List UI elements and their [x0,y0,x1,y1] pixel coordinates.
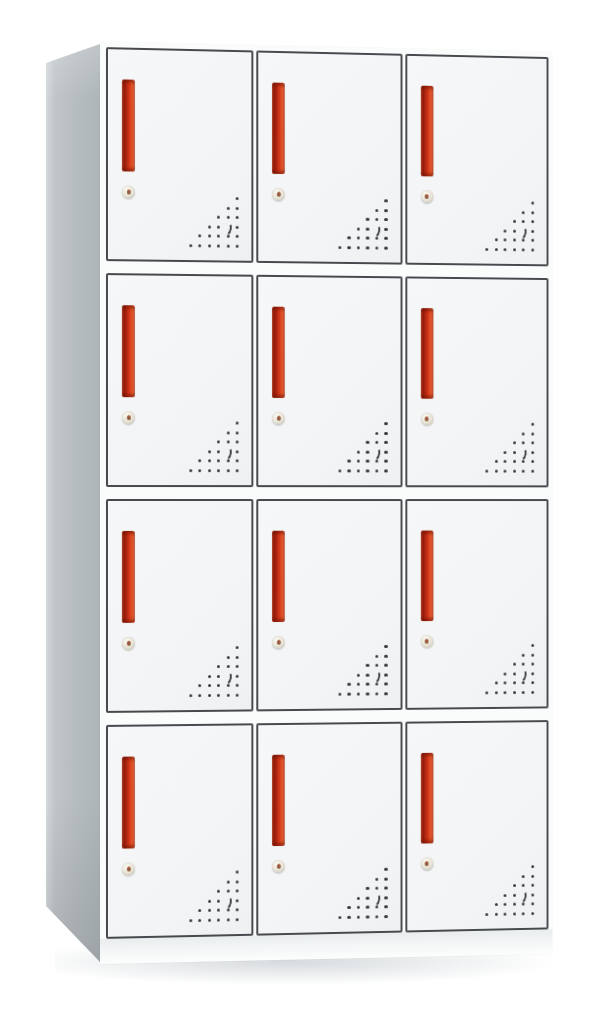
vent-dot [385,469,388,472]
locker-door [257,722,403,936]
vent-dot [375,877,378,880]
vent-dot [531,912,534,915]
keyhole-icon [277,864,281,869]
vent-dot [504,460,507,463]
vent-dot [531,884,534,887]
vent-dot [522,681,525,684]
cabinet-side-panel [46,44,100,962]
vent-dot [348,236,351,239]
vent-dot [486,691,489,694]
vent-dot [366,664,369,667]
door-handle-icon [272,307,285,398]
vent-holes-icon [189,870,239,922]
keyhole-icon [126,641,130,646]
door-handle-icon [122,757,135,849]
vent-holes-icon [338,645,388,696]
vent-dot [513,681,516,684]
keyhole-icon [425,639,429,644]
locker-door [405,720,548,932]
vent-dot [226,440,229,443]
vent-dot [513,469,516,472]
vent-dot [217,909,220,912]
vent-dot [236,197,239,200]
vent-dot [226,665,229,668]
door-handle-icon [122,531,135,623]
vent-dot [522,912,525,915]
vent-dot [486,913,489,916]
locker-door [257,499,403,711]
vent-dot [385,645,388,648]
vent-dot [236,422,239,425]
vent-holes-icon [338,868,388,919]
vent-dot [504,681,507,684]
vent-dot [504,691,507,694]
locker-door [106,273,254,487]
vent-dot [236,899,239,902]
vent-dot [504,451,507,454]
vent-dot [513,238,516,241]
vent-dot [198,918,201,921]
vent-holes-icon [485,201,534,252]
vent-dot [522,211,525,214]
vent-dot [226,206,229,209]
vent-dot [531,202,534,205]
vent-dot [375,469,378,472]
vent-dot [366,896,369,899]
vent-dot [366,237,369,240]
vent-dot [236,665,239,668]
locker-door [405,276,548,487]
vent-dot [236,646,239,649]
vent-dot [217,684,220,687]
vent-dot [522,239,525,242]
vent-holes-icon [189,646,239,697]
vent-dot [385,209,388,212]
vent-dot [217,918,220,921]
vent-dot [495,248,498,251]
vent-dot [522,663,525,666]
vent-dot [348,692,351,695]
vent-dot [217,235,220,238]
vent-dot [522,884,525,887]
vent-dot [198,459,201,462]
vent-dot [198,469,201,472]
vent-dot [513,460,516,463]
vent-dot [217,216,220,219]
vent-dot [385,877,388,880]
vent-dot [348,246,351,249]
vent-dot [522,220,525,223]
vent-dot [486,247,489,250]
vent-dot [189,694,192,697]
vent-dot [208,469,211,472]
vent-dot [226,459,229,462]
vent-dot [385,441,388,444]
vent-dot [504,894,507,897]
vent-dot [217,899,220,902]
vent-dot [217,450,220,453]
vent-dot [531,441,534,444]
vent-dot [495,469,498,472]
cam-lock-icon [122,185,135,198]
vent-dot [531,423,534,426]
vent-dot [236,693,239,696]
vent-dot [236,469,239,472]
vent-dot [375,654,378,657]
vent-dot [236,206,239,209]
keyhole-icon [126,866,130,871]
vent-dot [531,865,534,868]
vent-dot [385,218,388,221]
vent-dot [385,682,388,685]
vent-dot [348,460,351,463]
vent-dot [366,915,369,918]
vent-dot [236,684,239,687]
vent-dot [198,684,201,687]
vent-dot [531,672,534,675]
vent-dot [348,906,351,909]
vent-dot [385,422,388,425]
vent-dot [385,450,388,453]
vent-dot [226,684,229,687]
vent-dot [531,432,534,435]
vent-dot [208,918,211,921]
vent-dot [375,915,378,918]
vent-dot [486,469,489,472]
vent-holes-icon [189,196,239,247]
vent-dot [531,681,534,684]
vent-dot [513,229,516,232]
vent-dot [385,868,388,871]
vent-dot [366,692,369,695]
vent-dot [357,450,360,453]
vent-dot [513,903,516,906]
vent-dot [513,441,516,444]
vent-dot [226,880,229,883]
vent-dot [531,469,534,472]
vent-dot [375,237,378,240]
vent-dot [217,665,220,668]
vent-dot [236,440,239,443]
vent-dot [236,674,239,677]
vent-holes-icon [189,421,239,472]
cam-lock-icon [272,188,285,201]
vent-dot [366,469,369,472]
vent-dot [217,674,220,677]
locker-door [257,275,403,487]
locker-door [405,54,548,266]
keyhole-icon [126,189,130,194]
locker-door [257,51,403,265]
keyhole-icon [277,416,281,421]
vent-dot [208,684,211,687]
keyhole-icon [126,415,130,420]
cam-lock-icon [272,860,285,873]
vent-dot [385,237,388,240]
vent-dot [366,218,369,221]
vent-dot [385,460,388,463]
vent-dot [226,918,229,921]
vent-dot [504,912,507,915]
vent-dot [375,246,378,249]
locker-door [106,47,254,263]
vent-dot [504,248,507,251]
vent-dot [531,644,534,647]
vent-dot [198,909,201,912]
vent-dot [226,431,229,434]
vent-dot [236,655,239,658]
vent-dot [357,906,360,909]
vent-dot [217,225,220,228]
vent-dot [531,874,534,877]
vent-dot [375,209,378,212]
door-handle-icon [272,83,285,174]
vent-dot [338,246,341,249]
vent-dot [226,890,229,893]
vent-dot [385,664,388,667]
vent-dot [522,469,525,472]
vent-dot [513,691,516,694]
vent-dot [531,653,534,656]
vent-dot [385,905,388,908]
vent-dot [375,441,378,444]
cam-lock-icon [272,412,285,425]
vent-dot [495,912,498,915]
cam-lock-icon [272,636,285,649]
vent-dot [375,692,378,695]
door-handle-icon [122,79,135,171]
vent-dot [522,902,525,905]
vent-dot [189,469,192,472]
vent-dot [513,220,516,223]
vent-dot [522,653,525,656]
vent-dot [226,656,229,659]
vent-dot [375,460,378,463]
cam-lock-icon [421,412,434,425]
vent-dot [236,450,239,453]
vent-dot [504,229,507,232]
vent-dot [531,893,534,896]
vent-dot [348,469,351,472]
keyhole-icon [277,192,281,197]
vent-dot [208,244,211,247]
vent-dot [522,875,525,878]
vent-dot [385,915,388,918]
vent-holes-icon [485,644,534,694]
vent-holes-icon [338,199,388,250]
vent-dot [236,908,239,911]
vent-dot [357,915,360,918]
vent-dot [375,683,378,686]
vent-dot [366,683,369,686]
vent-dot [366,441,369,444]
cam-lock-icon [421,857,434,870]
vent-dot [236,880,239,883]
vent-dot [385,673,388,676]
cabinet-front [100,42,552,964]
vent-dot [208,899,211,902]
vent-dot [522,432,525,435]
vent-dot [217,693,220,696]
vent-dot [375,664,378,667]
vent-dot [236,235,239,238]
vent-dot [385,886,388,889]
vent-dot [522,460,525,463]
vent-dot [226,216,229,219]
vent-dot [513,663,516,666]
vent-dot [208,909,211,912]
vent-dot [226,693,229,696]
vent-dot [375,905,378,908]
vent-dot [217,469,220,472]
vent-dot [531,902,534,905]
locker-door [106,499,254,713]
vent-dot [236,216,239,219]
cam-lock-icon [421,190,434,203]
vent-dot [495,903,498,906]
vent-dot [385,432,388,435]
keyhole-icon [277,640,281,645]
vent-dot [226,908,229,911]
vent-dot [495,238,498,241]
vent-dot [338,469,341,472]
vent-dot [226,244,229,247]
vent-dot [198,244,201,247]
door-handle-icon [122,305,135,397]
vent-dot [208,225,211,228]
vent-dot [208,450,211,453]
vent-dot [357,692,360,695]
vent-dot [504,469,507,472]
vent-dot [504,672,507,675]
vent-dot [495,681,498,684]
keyhole-icon [425,861,429,866]
vent-dot [531,690,534,693]
vent-dot [385,896,388,899]
vent-dot [513,672,516,675]
locker-door [106,723,254,939]
vent-dot [366,246,369,249]
vent-dot [198,234,201,237]
vent-dot [513,893,516,896]
vent-dot [357,227,360,230]
door-handle-icon [421,308,434,399]
vent-dot [531,451,534,454]
vent-dot [522,248,525,251]
door-handle-icon [421,753,434,844]
vent-dot [375,887,378,890]
vent-dot [385,654,388,657]
vent-dot [217,440,220,443]
vent-dot [208,693,211,696]
vent-dot [531,211,534,214]
vent-holes-icon [485,865,534,916]
vent-dot [366,887,369,890]
vent-dot [357,469,360,472]
vent-dot [375,431,378,434]
keyhole-icon [425,194,429,199]
vent-dot [522,441,525,444]
vent-dot [366,450,369,453]
vent-dot [357,246,360,249]
vent-dot [236,870,239,873]
vent-dot [531,239,534,242]
vent-dot [217,459,220,462]
locker-cabinet-photo [0,0,605,1009]
cam-lock-icon [122,862,135,875]
vent-dot [531,229,534,232]
vent-dot [208,459,211,462]
vent-dot [198,694,201,697]
cam-lock-icon [122,411,135,424]
vent-dot [495,691,498,694]
door-handle-icon [272,531,285,622]
vent-dot [338,692,341,695]
vent-dot [531,248,534,251]
vent-dot [375,218,378,221]
vent-dot [217,890,220,893]
vent-dot [513,451,516,454]
vent-dot [236,918,239,921]
vent-dot [236,459,239,462]
vent-dot [236,244,239,247]
vent-dot [357,896,360,899]
vent-dot [531,663,534,666]
vent-dot [236,225,239,228]
vent-dot [366,906,369,909]
vent-dot [348,683,351,686]
vent-dot [513,248,516,251]
vent-dot [513,884,516,887]
vent-dot [357,236,360,239]
vent-dot [189,244,192,247]
vent-dot [495,460,498,463]
vent-dot [366,227,369,230]
cam-lock-icon [122,637,135,650]
vent-dot [531,460,534,463]
vent-dot [208,675,211,678]
vent-dot [189,919,192,922]
vent-holes-icon [338,422,388,472]
vent-dot [385,227,388,230]
cam-lock-icon [421,635,434,648]
vent-dot [504,238,507,241]
vent-dot [366,673,369,676]
vent-dot [357,460,360,463]
vent-dot [366,460,369,463]
vent-dot [226,469,229,472]
vent-dot [236,431,239,434]
vent-dot [385,246,388,249]
vent-dot [208,234,211,237]
door-handle-icon [421,531,434,622]
vent-dot [226,235,229,238]
door-handle-icon [272,755,285,846]
vent-dot [357,673,360,676]
vent-dot [357,683,360,686]
vent-holes-icon [485,423,534,473]
door-grid [106,47,548,939]
keyhole-icon [425,416,429,421]
vent-dot [385,199,388,202]
vent-dot [217,244,220,247]
vent-dot [522,690,525,693]
vent-dot [513,912,516,915]
vent-dot [348,915,351,918]
vent-dot [338,916,341,919]
vent-dot [531,220,534,223]
vent-dot [504,903,507,906]
